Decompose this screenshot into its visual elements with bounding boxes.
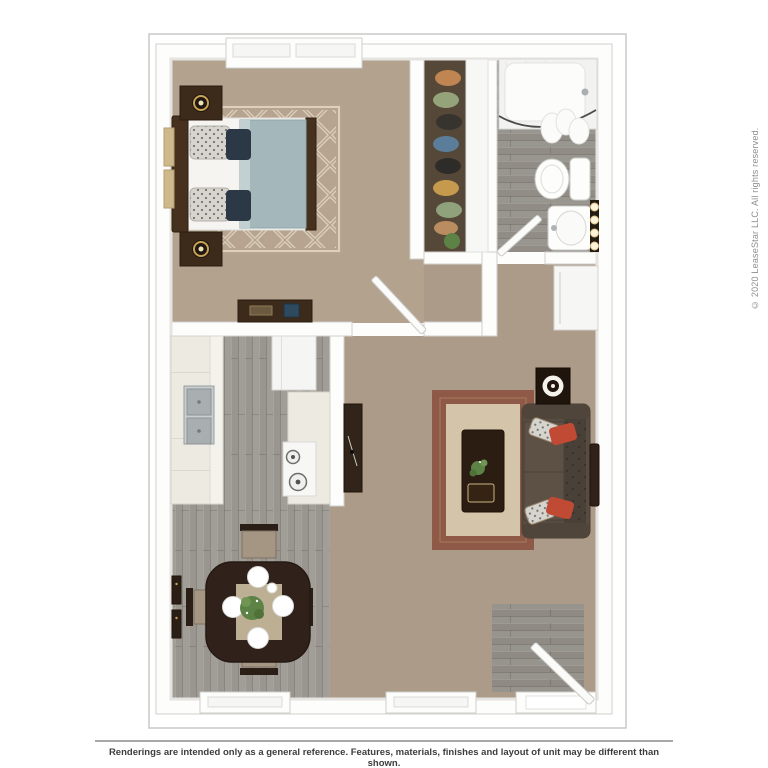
tub-faucet	[582, 89, 589, 96]
living-window	[386, 692, 476, 713]
dining-table	[206, 562, 310, 662]
closet-bathroom-wall	[488, 59, 497, 259]
dining-window	[200, 692, 290, 713]
vanity-lights	[590, 200, 599, 252]
bed	[172, 116, 316, 232]
floor-plan-rendering	[0, 0, 768, 768]
kitchen-sink	[184, 386, 214, 444]
dresser-tray	[250, 306, 272, 315]
floor-plan-page: © 2020 LeaseStar LLC. All rights reserve…	[0, 0, 768, 768]
kitchen-east-wall	[330, 336, 344, 506]
small-bowl	[267, 583, 277, 593]
closet-south-wall	[424, 252, 488, 264]
bathroom-south-wall	[545, 252, 597, 264]
dresser	[238, 300, 312, 322]
navy-pillow	[226, 190, 251, 221]
toilet	[535, 158, 590, 200]
coffee-table-tray	[468, 484, 494, 502]
stove	[283, 442, 316, 496]
damask-pillow	[190, 188, 230, 221]
speaker-side-table	[536, 368, 570, 404]
nightstand-top	[180, 86, 222, 120]
disclaimer-text: Renderings are intended only as a genera…	[109, 747, 659, 768]
sofa-arm	[522, 523, 590, 538]
dresser-box	[284, 304, 299, 317]
sofa-arm	[522, 404, 590, 419]
sink-faucet	[551, 225, 557, 231]
dining-chair-top	[240, 524, 278, 558]
console-tv	[350, 450, 354, 454]
sofa	[522, 404, 590, 538]
wall-tv	[590, 444, 599, 506]
coffee-table	[462, 430, 504, 512]
footboard	[306, 118, 316, 230]
disclaimer-footer: Renderings are intended only as a genera…	[95, 740, 673, 768]
centerpiece-plant	[240, 596, 264, 620]
nightstand-bottom	[180, 232, 222, 266]
closet-plant	[444, 233, 460, 249]
copyright-notice: © 2020 LeaseStar LLC. All rights reserve…	[750, 10, 760, 310]
pedestal-sink	[548, 206, 592, 250]
refrigerator	[272, 336, 316, 390]
media-console	[344, 404, 362, 492]
bedroom-south-wall	[171, 322, 352, 336]
closet-door-panel	[466, 59, 488, 252]
bedroom-east-wall	[410, 59, 424, 259]
bedroom-window	[226, 38, 362, 68]
hall-east-wall	[482, 252, 497, 336]
damask-pillow	[190, 126, 230, 159]
toilet-tank	[570, 158, 590, 200]
navy-pillow	[226, 129, 251, 160]
